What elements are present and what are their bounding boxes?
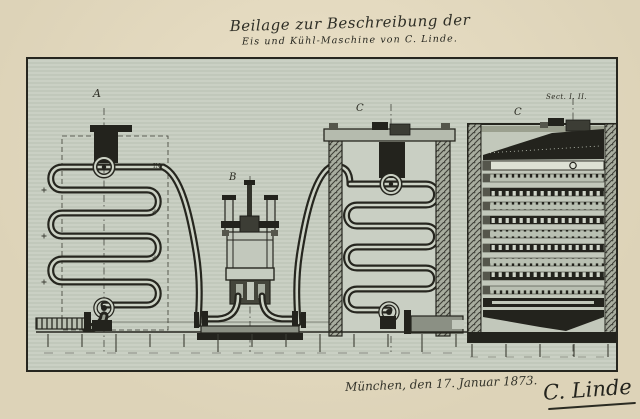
rod-coupling bbox=[240, 216, 259, 232]
coil-c-top-valve bbox=[389, 182, 393, 186]
pump-base-plate bbox=[197, 333, 303, 340]
label-section-c: C bbox=[514, 108, 522, 118]
right-coil-unit bbox=[324, 122, 464, 336]
label-pump-b: B bbox=[229, 173, 236, 183]
cylinder bbox=[227, 232, 273, 270]
handwritten-date: München, den 17. Januar 1873. bbox=[345, 372, 575, 394]
label-inlet: IN bbox=[153, 164, 161, 170]
supply-pipe bbox=[36, 318, 88, 329]
scanned-patent-page: Beilage zur Beschreibung der Eis und Küh… bbox=[0, 0, 640, 419]
ice-cell-rows bbox=[483, 174, 604, 294]
coil-a-bottom-valve bbox=[101, 305, 107, 311]
compressor-pump bbox=[194, 166, 332, 328]
discharge-flange bbox=[404, 310, 411, 334]
supply-pipe-flange bbox=[84, 312, 91, 332]
drawing-frame bbox=[26, 57, 618, 372]
label-coil-a: A bbox=[93, 88, 101, 99]
title-block: Beilage zur Beschreibung der Eis und Küh… bbox=[60, 14, 640, 46]
coil-c-bottom-valve bbox=[386, 309, 392, 315]
coil-a-top-cap bbox=[90, 125, 132, 132]
coil-a-top-valve bbox=[102, 165, 106, 169]
machine-drawing bbox=[28, 59, 616, 370]
coil-a-drain-block bbox=[92, 320, 112, 331]
container-left-wall bbox=[329, 140, 342, 336]
label-coil-c: C bbox=[356, 104, 364, 114]
container-right-wall bbox=[436, 140, 450, 336]
label-section-caption: Sect. I. II. bbox=[546, 94, 587, 101]
ice-box-cross-section bbox=[468, 118, 616, 342]
container-lid bbox=[324, 129, 455, 141]
left-coil-unit bbox=[36, 125, 199, 332]
valve-plate bbox=[226, 268, 274, 280]
top-tray bbox=[483, 161, 604, 170]
